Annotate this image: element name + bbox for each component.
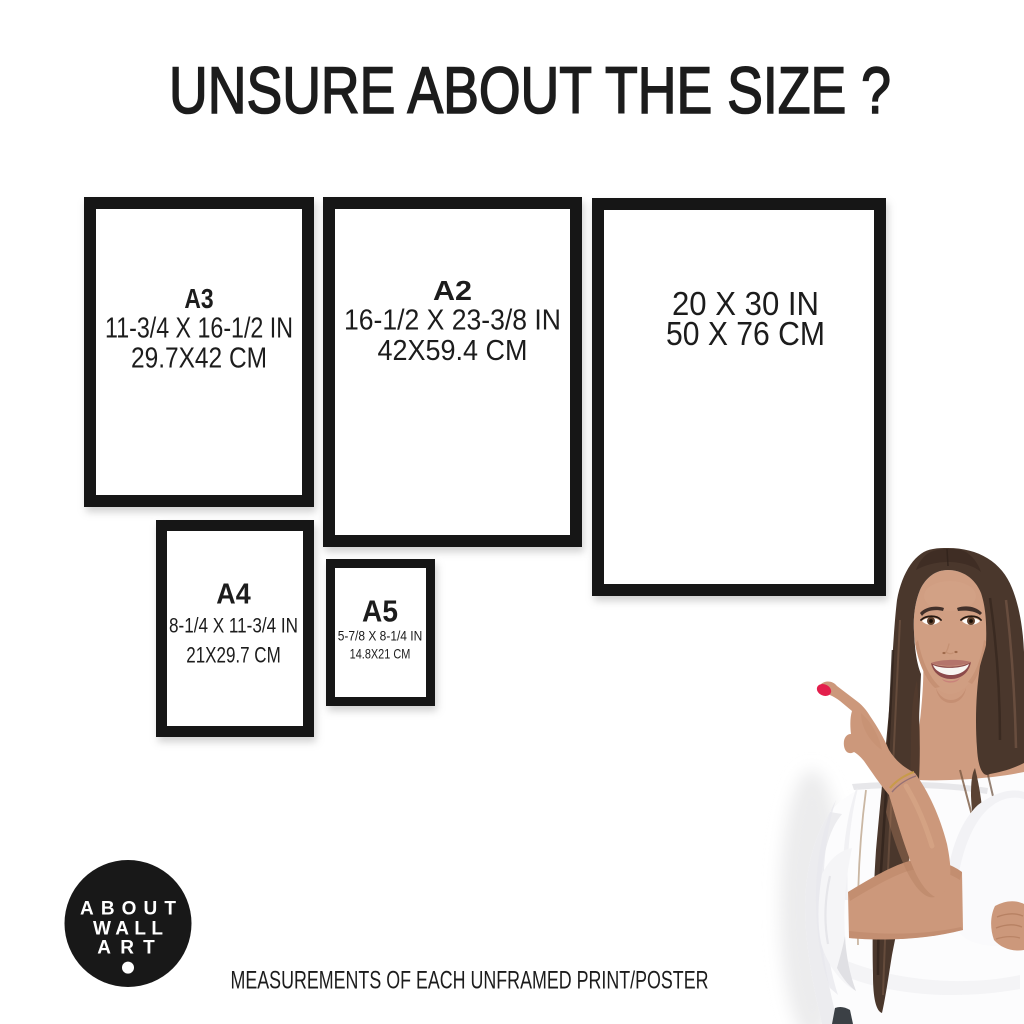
svg-text:5-7/8 X 8-1/4 IN: 5-7/8 X 8-1/4 IN — [338, 627, 423, 643]
svg-text:A3: A3 — [184, 283, 213, 314]
svg-text:UNSURE ABOUT THE SIZE ?: UNSURE ABOUT THE SIZE ? — [169, 53, 891, 127]
svg-text:21X29.7 CM: 21X29.7 CM — [186, 643, 281, 668]
svg-text:A5: A5 — [362, 594, 398, 629]
svg-text:11-3/4 X 16-1/2 IN: 11-3/4 X 16-1/2 IN — [105, 313, 293, 345]
svg-text:A2: A2 — [433, 275, 472, 306]
svg-text:8-1/4 X 11-3/4 IN: 8-1/4 X 11-3/4 IN — [169, 614, 298, 638]
svg-text:16-1/2 X 23-3/8 IN: 16-1/2 X 23-3/8 IN — [344, 305, 561, 337]
svg-text:42X59.4 CM: 42X59.4 CM — [378, 335, 528, 367]
svg-text:14.8X21 CM: 14.8X21 CM — [350, 645, 411, 661]
svg-text:WALL: WALL — [93, 918, 163, 939]
svg-text:A4: A4 — [216, 579, 250, 611]
svg-text:MEASUREMENTS OF EACH UNFRAMED: MEASUREMENTS OF EACH UNFRAMED PRINT/POST… — [231, 967, 709, 995]
svg-text:ART: ART — [97, 938, 155, 959]
svg-text:50 X 76 CM: 50 X 76 CM — [666, 315, 825, 352]
svg-text:29.7X42 CM: 29.7X42 CM — [131, 343, 267, 375]
